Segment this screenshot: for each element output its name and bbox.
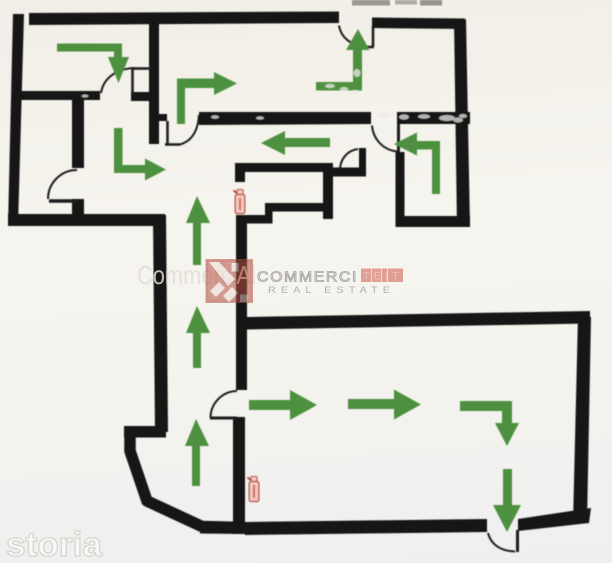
svg-text:TEIT: TEIT <box>363 271 400 283</box>
svg-text:REAL ESTATE: REAL ESTATE <box>268 285 395 295</box>
svg-text:storia: storia <box>6 526 103 563</box>
svg-text:COMMERCI: COMMERCI <box>257 269 358 286</box>
